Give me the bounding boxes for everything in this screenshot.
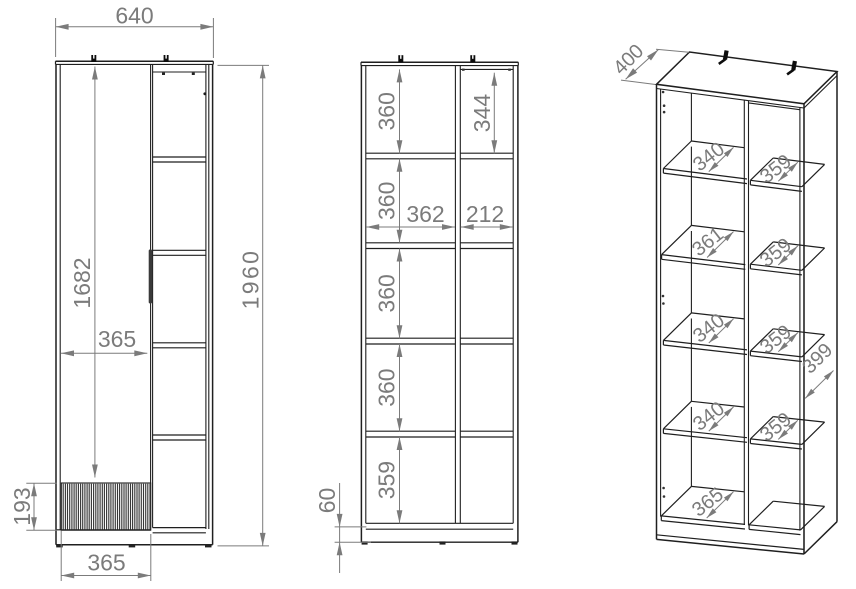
svg-text:362: 362 <box>406 201 444 227</box>
svg-text:640: 640 <box>115 2 153 28</box>
svg-text:360: 360 <box>373 368 399 406</box>
svg-text:360: 360 <box>373 182 399 220</box>
svg-text:359: 359 <box>373 461 399 499</box>
svg-text:360: 360 <box>373 92 399 130</box>
svg-text:344: 344 <box>469 94 495 133</box>
svg-text:360: 360 <box>373 274 399 312</box>
svg-text:1682: 1682 <box>69 257 95 308</box>
svg-text:193: 193 <box>9 487 35 525</box>
svg-text:212: 212 <box>466 201 504 227</box>
svg-text:60: 60 <box>314 488 340 514</box>
svg-text:365: 365 <box>98 326 136 352</box>
svg-text:1960: 1960 <box>238 249 264 310</box>
svg-text:365: 365 <box>87 550 125 576</box>
